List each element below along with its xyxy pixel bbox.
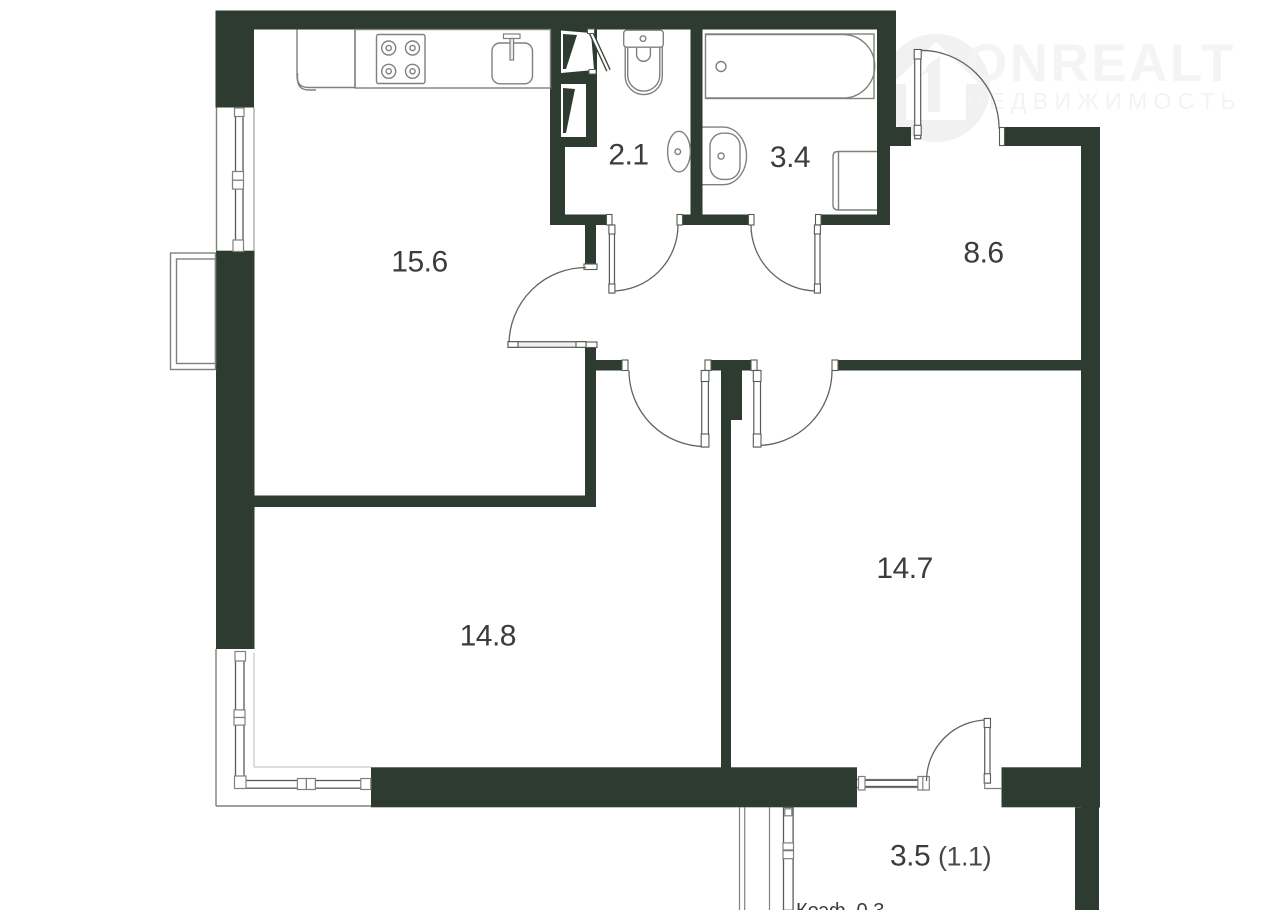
svg-text:14.7: 14.7 [876, 552, 932, 585]
svg-text:3.5 (1.1): 3.5 (1.1) [890, 840, 991, 873]
svg-text:2.1: 2.1 [608, 139, 648, 172]
svg-text:НЕДВИЖИМОСТЬ: НЕДВИЖИМОСТЬ [966, 88, 1242, 114]
svg-text:8.6: 8.6 [963, 237, 1003, 270]
svg-text:ONREALT: ONREALT [966, 34, 1236, 93]
svg-text:15.6: 15.6 [391, 246, 447, 279]
svg-text:Коэф. 0,3: Коэф. 0,3 [796, 900, 884, 910]
svg-text:3.4: 3.4 [770, 141, 810, 174]
svg-text:14.8: 14.8 [460, 620, 516, 653]
